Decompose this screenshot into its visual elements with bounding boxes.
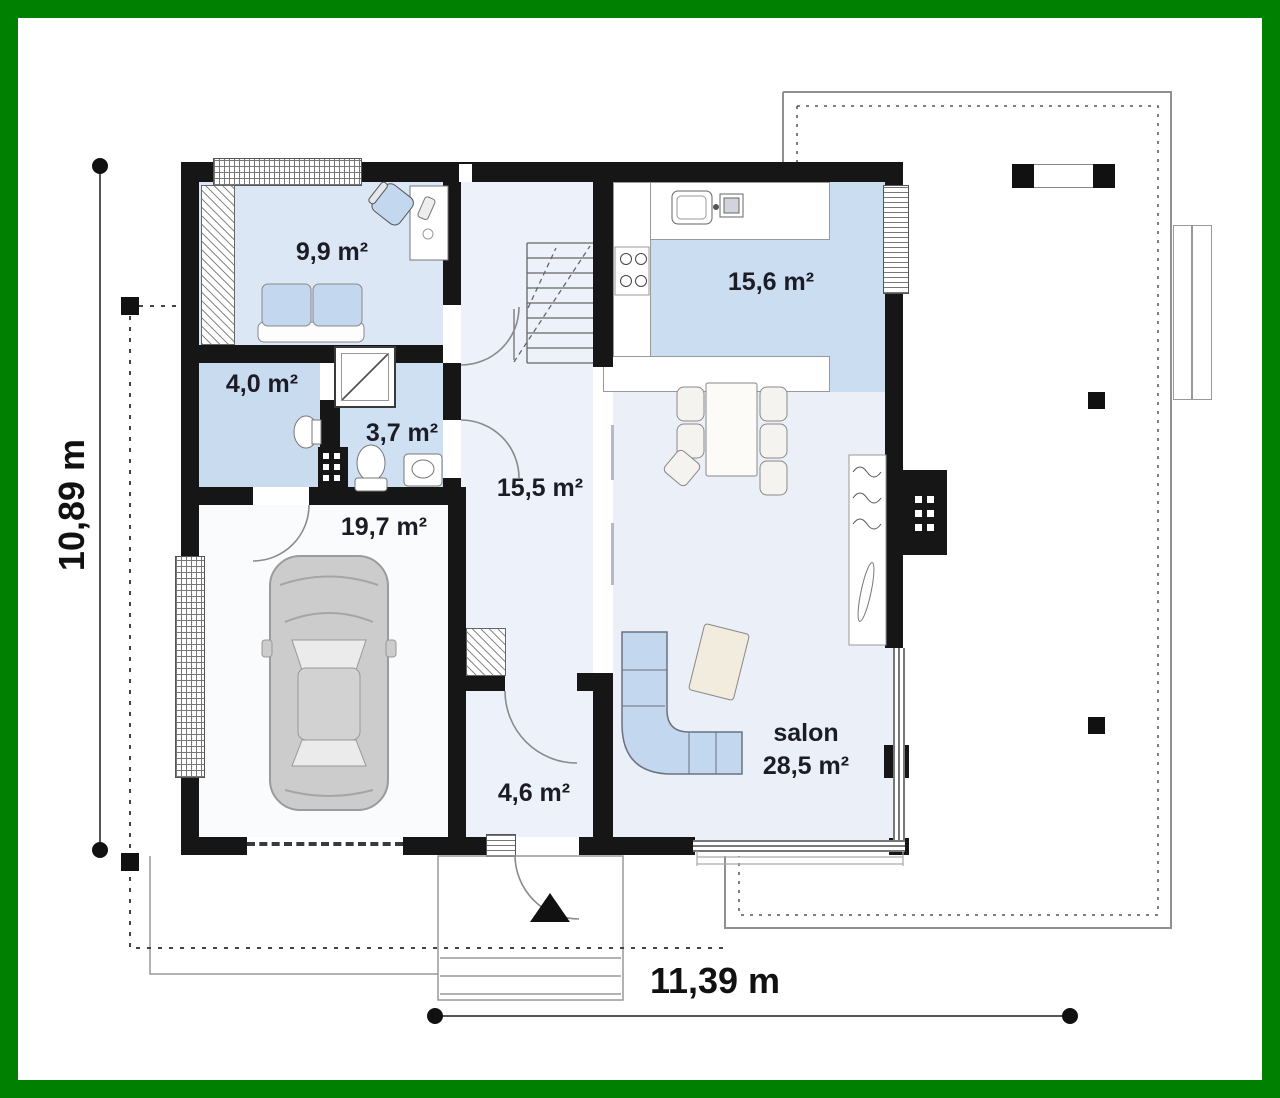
- property-marker: [121, 853, 139, 871]
- dimension-bottom-label: 11,39 m: [630, 962, 800, 1000]
- dimension-left-label: 10,89 m: [54, 417, 90, 593]
- dining-chair: [760, 461, 787, 495]
- property-marker: [121, 297, 139, 315]
- floor-plan: 9,9 m² 4,0 m² 3,7 m² 15,5 m² 19,7 m² 15,…: [0, 0, 1280, 1098]
- salon-window-sill: [697, 851, 903, 866]
- door-arc-entry: [505, 691, 577, 763]
- salon-name: salon: [726, 717, 886, 750]
- utility-basin: [294, 416, 321, 448]
- porch: [438, 856, 623, 1000]
- kitchen-sink: [672, 191, 743, 224]
- desk: [410, 186, 448, 260]
- room-hall-label: 15,5 m²: [480, 474, 600, 502]
- coffee-table: [688, 623, 749, 700]
- toilet: [355, 445, 387, 491]
- stairs: [514, 243, 593, 363]
- room-salon-label: salon 28,5 m²: [726, 717, 886, 783]
- driveway: [150, 856, 438, 974]
- washbasin: [404, 454, 442, 486]
- dining-chair: [760, 387, 787, 421]
- dimension-left: [92, 158, 108, 858]
- plan-linework: [0, 0, 1280, 1098]
- dining-table: [706, 383, 757, 476]
- desk-chair: [365, 178, 416, 228]
- dining-chair: [760, 424, 787, 458]
- salon-area: 28,5 m²: [726, 750, 886, 783]
- terrace-outline-solid: [725, 92, 1171, 928]
- room-entry-label: 4,6 m²: [474, 779, 594, 807]
- dining-chair: [677, 387, 704, 421]
- car: [262, 556, 396, 810]
- dining-set: [662, 383, 787, 495]
- door-arc-garage: [253, 505, 309, 561]
- door-arc-bathroom: [461, 420, 519, 478]
- door-arc-study: [461, 307, 519, 365]
- room-study-label: 9,9 m²: [272, 238, 392, 266]
- room-bathroom-label: 3,7 m²: [342, 419, 462, 447]
- cooktop: [615, 247, 649, 295]
- dimension-bottom: [427, 1008, 1078, 1024]
- terrace-outline-dashed: [739, 106, 1158, 915]
- room-garage-label: 19,7 m²: [324, 513, 444, 541]
- fireplace-grate: [915, 496, 934, 531]
- plant: [849, 455, 886, 645]
- study-sofa: [258, 284, 364, 342]
- property-line: [130, 305, 723, 948]
- room-utility-label: 4,0 m²: [202, 370, 322, 398]
- boiler: [318, 447, 348, 493]
- entrance-arrow-icon: [530, 893, 570, 922]
- room-kitchen-label: 15,6 m²: [711, 268, 831, 296]
